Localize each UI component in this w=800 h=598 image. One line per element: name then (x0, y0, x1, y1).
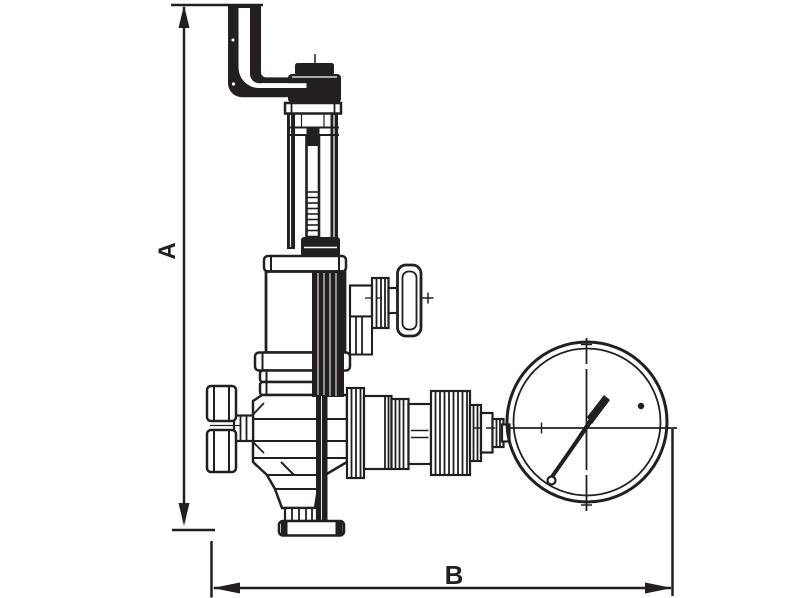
svg-text:B: B (445, 560, 464, 590)
svg-text:A: A (154, 242, 181, 259)
